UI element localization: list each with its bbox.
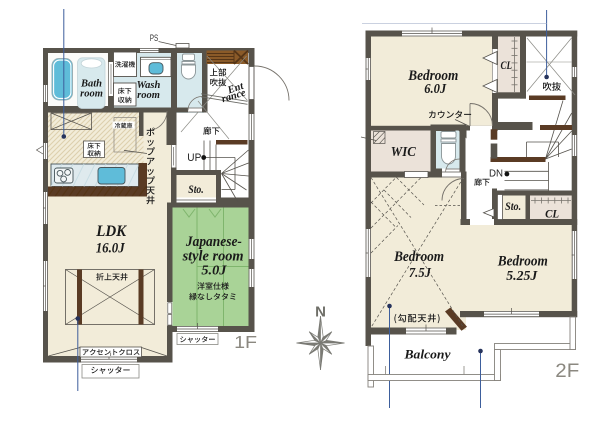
- svg-text:16.0J: 16.0J: [96, 241, 125, 257]
- svg-text:PS: PS: [150, 33, 159, 43]
- svg-text:CL: CL: [545, 207, 559, 221]
- svg-text:UP: UP: [187, 152, 201, 164]
- svg-text:LDK: LDK: [95, 223, 127, 240]
- svg-text:Sto.: Sto.: [188, 184, 204, 196]
- svg-text:room: room: [137, 90, 160, 101]
- svg-text:5.0J: 5.0J: [201, 264, 227, 279]
- svg-text:style room: style room: [182, 249, 244, 265]
- svg-text:Balcony: Balcony: [403, 347, 450, 362]
- svg-text:6.0J: 6.0J: [424, 82, 447, 97]
- svg-text:N: N: [315, 304, 326, 321]
- svg-text:5.25J: 5.25J: [506, 269, 538, 284]
- svg-text:7.5J: 7.5J: [409, 266, 432, 281]
- svg-text:2F: 2F: [555, 360, 579, 382]
- svg-text:room: room: [80, 89, 103, 100]
- svg-text:WIC: WIC: [391, 144, 417, 159]
- svg-text:CL: CL: [500, 58, 512, 72]
- svg-text:1F: 1F: [234, 332, 257, 352]
- svg-text:DN: DN: [489, 169, 503, 180]
- svg-text:Bedroom: Bedroom: [393, 249, 444, 265]
- svg-text:Bedroom: Bedroom: [497, 254, 548, 270]
- svg-text:Sto.: Sto.: [505, 201, 521, 213]
